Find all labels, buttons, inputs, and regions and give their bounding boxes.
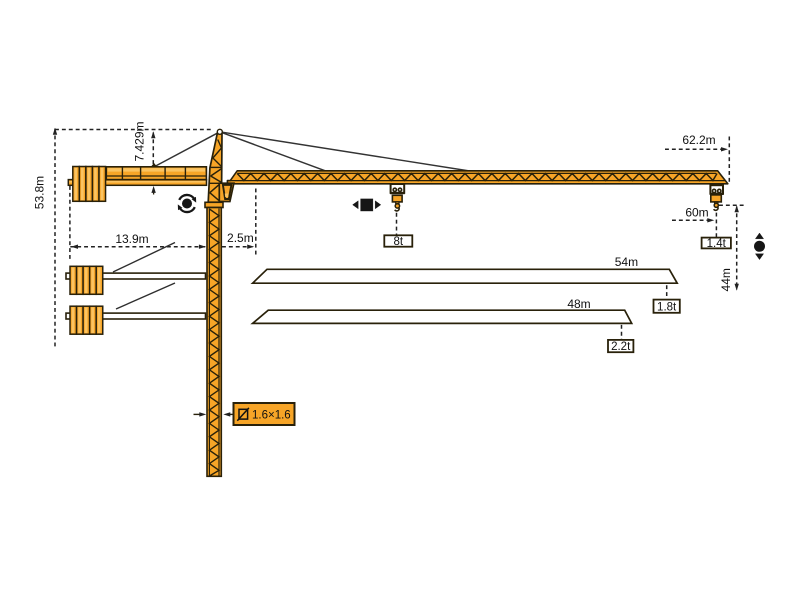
svg-text:2.5m: 2.5m bbox=[227, 231, 254, 245]
svg-text:54m: 54m bbox=[615, 255, 638, 269]
svg-text:13.9m: 13.9m bbox=[115, 232, 148, 246]
svg-text:62.2m: 62.2m bbox=[682, 133, 715, 147]
svg-text:53.8m: 53.8m bbox=[33, 176, 47, 209]
svg-text:2.2t: 2.2t bbox=[611, 341, 631, 353]
svg-text:48m: 48m bbox=[567, 297, 590, 311]
svg-text:1.8t: 1.8t bbox=[657, 301, 677, 313]
svg-text:1.4t: 1.4t bbox=[707, 238, 727, 250]
svg-text:8t: 8t bbox=[394, 236, 404, 248]
svg-text:1.6×1.6: 1.6×1.6 bbox=[252, 410, 291, 422]
svg-text:60m: 60m bbox=[685, 205, 708, 219]
svg-text:7.429m: 7.429m bbox=[133, 121, 147, 161]
svg-text:44m: 44m bbox=[719, 268, 733, 291]
